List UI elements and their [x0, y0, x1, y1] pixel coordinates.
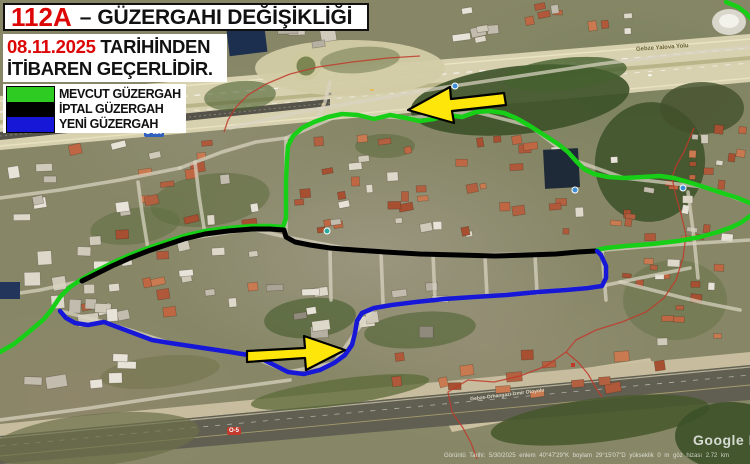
effective-date: 08.11.2025 [7, 36, 96, 57]
title-box: 112A – GÜZERGAHI DEĞİŞİKLİĞİ [3, 3, 369, 31]
date-suffix: TARİHİNDEN [96, 36, 211, 57]
legend-swatch-0 [7, 87, 54, 102]
legend-label-1: İPTAL GÜZERGAH [59, 102, 163, 117]
legend-swatches [6, 86, 55, 133]
legend-label-0: MEVCUT GÜZERGAH [59, 87, 181, 102]
map-canvas[interactable]: 112A – GÜZERGAHI DEĞİŞİKLİĞİ 08.11.2025 … [0, 0, 750, 464]
legend-swatch-2 [7, 117, 54, 132]
route-code: 112A [11, 4, 72, 30]
title-dash: – [80, 7, 92, 28]
validity-box: 08.11.2025 TARİHİNDEN İTİBAREN GEÇERLİDİ… [3, 34, 227, 82]
status-bar: Görüntü Tarihi: 5/30/2025 enlem 40°47'29… [444, 453, 729, 459]
validity-line2: İTİBAREN GEÇERLİDİR. [7, 58, 223, 80]
legend-swatch-1 [7, 102, 54, 117]
page-title: GÜZERGAHI DEĞİŞİKLİĞİ [97, 7, 352, 28]
google-earth-watermark: Google Earth [693, 432, 750, 448]
legend: MEVCUT GÜZERGAHİPTAL GÜZERGAHYENİ GÜZERG… [3, 84, 186, 133]
road-badge-1: O-5 [227, 427, 241, 435]
legend-label-2: YENİ GÜZERGAH [59, 117, 158, 132]
validity-line1: 08.11.2025 TARİHİNDEN [7, 36, 223, 58]
